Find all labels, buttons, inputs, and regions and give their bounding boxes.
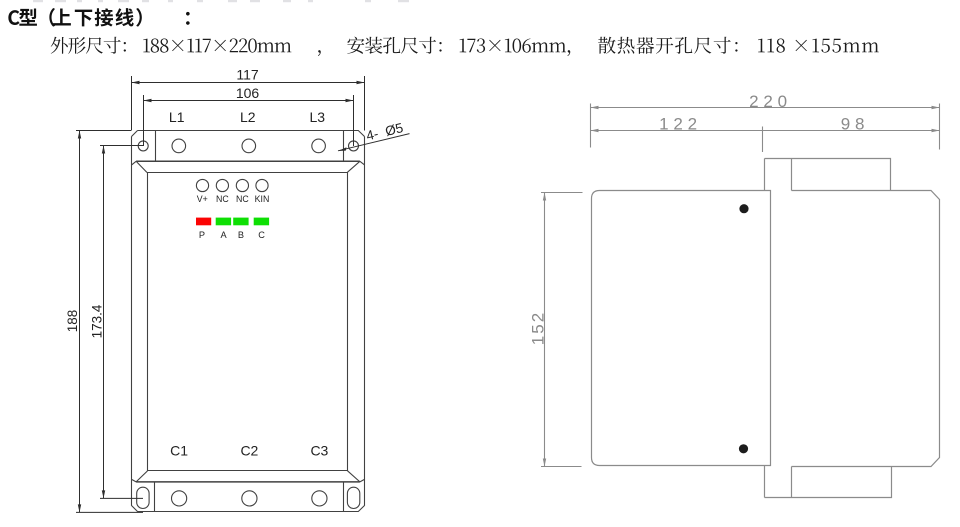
svg-text:P: P [199,230,205,240]
svg-text:C: C [258,230,265,240]
svg-text:NC: NC [236,194,249,204]
svg-text:L2: L2 [240,109,256,125]
svg-text:188: 188 [65,310,80,333]
svg-text:NC: NC [216,194,229,204]
svg-text:C2: C2 [240,442,258,458]
svg-text:A: A [221,230,228,240]
svg-text:B: B [238,230,244,240]
svg-text:152: 152 [529,311,548,345]
svg-text:V+: V+ [197,194,208,204]
svg-text:L1: L1 [169,109,185,125]
svg-text:117: 117 [236,67,259,83]
svg-text:98: 98 [841,115,870,134]
svg-text:122: 122 [659,115,702,134]
svg-text:KIN: KIN [255,194,270,204]
svg-text:C1: C1 [170,442,188,458]
svg-text:220: 220 [749,92,792,111]
svg-text:173.4: 173.4 [90,304,105,338]
svg-text:L3: L3 [310,109,326,125]
svg-text:106: 106 [236,85,260,101]
svg-text:C3: C3 [310,442,328,458]
